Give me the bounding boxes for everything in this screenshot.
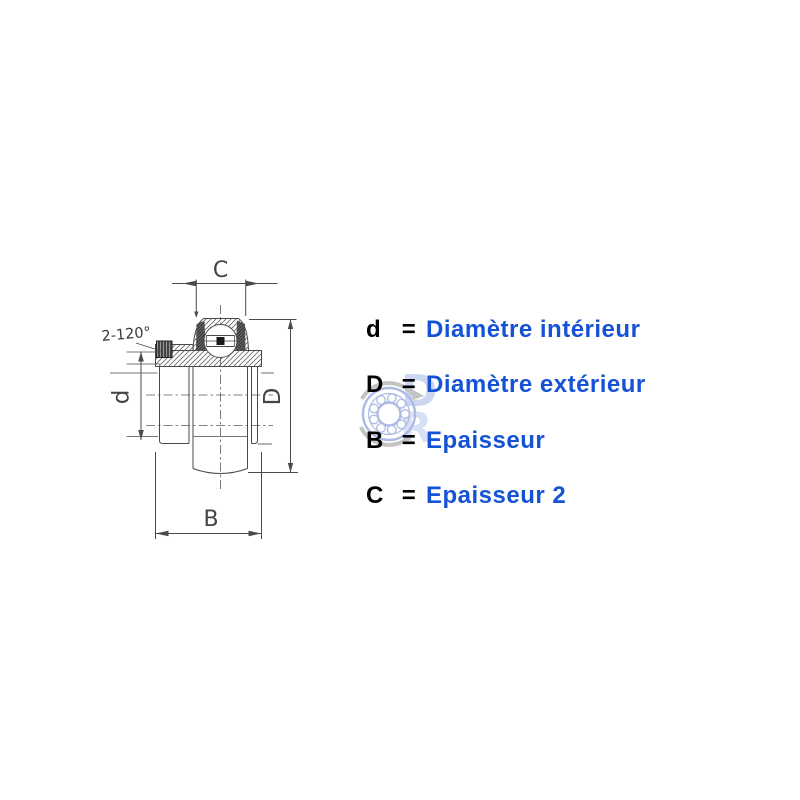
equals-sign: = (392, 317, 426, 343)
legend-label: Diamètre intérieur (426, 317, 640, 343)
bearing-section-view: C D B (101, 258, 298, 539)
dim-label-d-bore: d (109, 390, 135, 405)
legend-symbol: B (366, 428, 392, 454)
dimension-D: D (248, 320, 298, 473)
page: D R (0, 0, 800, 800)
legend-row-width-2: C = Epaisseur 2 (366, 483, 566, 509)
legend-label: Epaisseur (426, 428, 545, 454)
legend-symbol: D (366, 372, 392, 398)
sleeve-body (110, 367, 274, 474)
legend-symbol: C (366, 483, 392, 509)
legend-symbol: d (366, 317, 392, 343)
equals-sign: = (392, 483, 426, 509)
equals-sign: = (392, 428, 426, 454)
legend-label: Diamètre extérieur (426, 372, 646, 398)
legend-row-outer-diameter: D = Diamètre extérieur (366, 372, 646, 398)
dim-label-c: C (213, 258, 228, 283)
legend-row-inner-diameter: d = Diamètre intérieur (366, 317, 640, 343)
equals-sign: = (392, 372, 426, 398)
set-screw (157, 341, 173, 358)
dimension-B: B (156, 452, 262, 539)
legend-label: Epaisseur 2 (426, 483, 566, 509)
dim-label-d-outer: D (260, 388, 286, 406)
dimension-d: d (109, 352, 161, 441)
setscrew-annotation: 2-120° (101, 325, 161, 351)
legend-row-width: B = Epaisseur (366, 428, 545, 454)
dim-label-b: B (203, 507, 218, 532)
dimension-C: C (172, 258, 278, 318)
legend: d = Diamètre intérieur D = Diamètre exté… (366, 0, 796, 540)
annotation-label: 2-120° (101, 325, 152, 345)
